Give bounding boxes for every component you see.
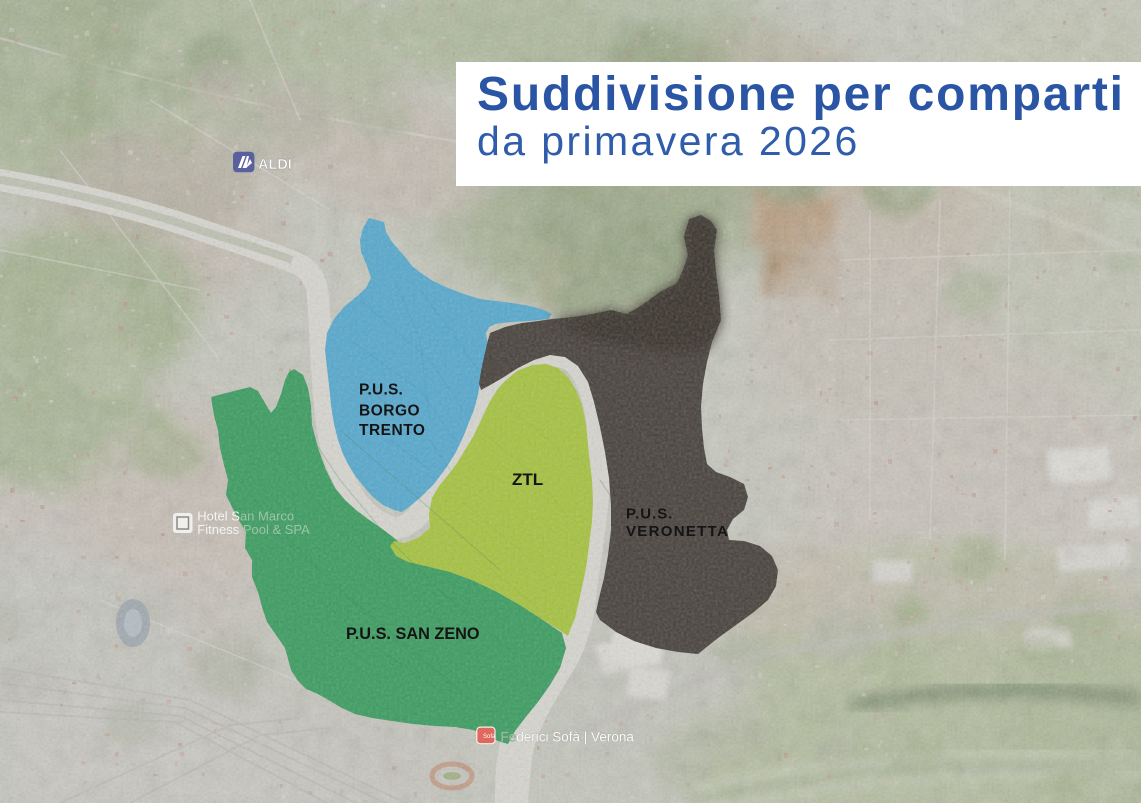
svg-text:ALDI: ALDI [258, 157, 292, 173]
svg-text:TRENTO: TRENTO [359, 422, 425, 439]
svg-text:P.U.S. SAN ZENO: P.U.S. SAN ZENO [346, 625, 480, 643]
svg-text:Federici Sofà | Verona: Federici Sofà | Verona [501, 729, 635, 744]
svg-text:P.U.S.: P.U.S. [359, 382, 403, 399]
svg-text:Sofa: Sofa [483, 734, 496, 740]
svg-text:ZTL: ZTL [512, 470, 543, 489]
svg-text:P.U.S.: P.U.S. [626, 505, 673, 522]
svg-text:VERONETTA: VERONETTA [626, 523, 729, 540]
svg-text:BORGO: BORGO [359, 402, 420, 419]
svg-text:Fitness Pool & SPA: Fitness Pool & SPA [197, 522, 310, 537]
